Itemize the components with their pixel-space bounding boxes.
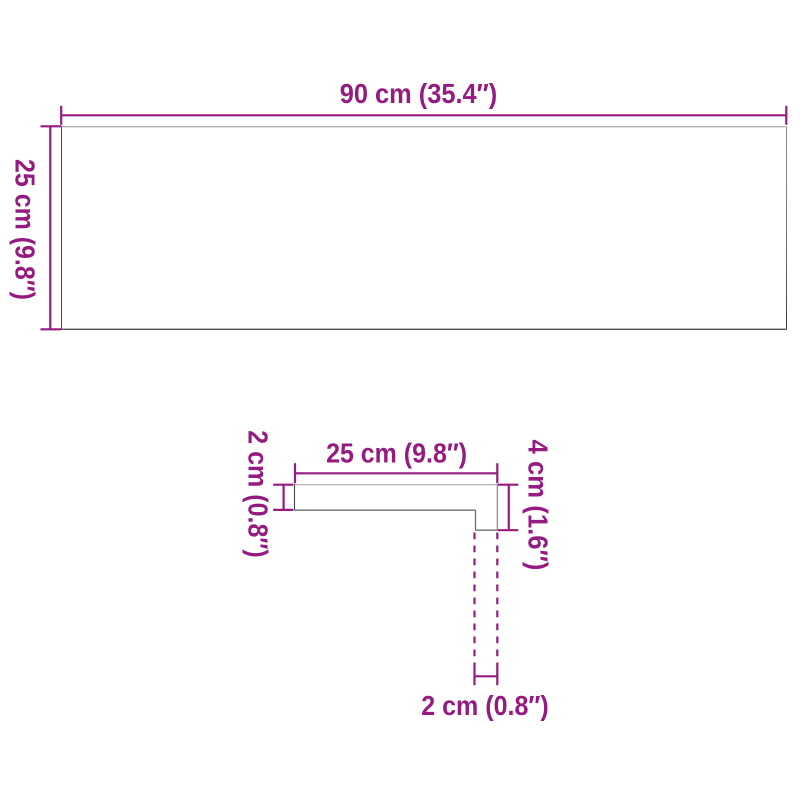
svg-text:90 cm (35.4″): 90 cm (35.4″) [340, 78, 498, 109]
svg-text:4 cm (1.6″): 4 cm (1.6″) [523, 440, 554, 571]
svg-text:25 cm (9.8″): 25 cm (9.8″) [10, 159, 41, 300]
svg-text:2 cm (0.8″): 2 cm (0.8″) [243, 430, 274, 558]
svg-text:2 cm (0.8″): 2 cm (0.8″) [421, 690, 549, 721]
svg-text:25 cm (9.8″): 25 cm (9.8″) [326, 437, 467, 468]
